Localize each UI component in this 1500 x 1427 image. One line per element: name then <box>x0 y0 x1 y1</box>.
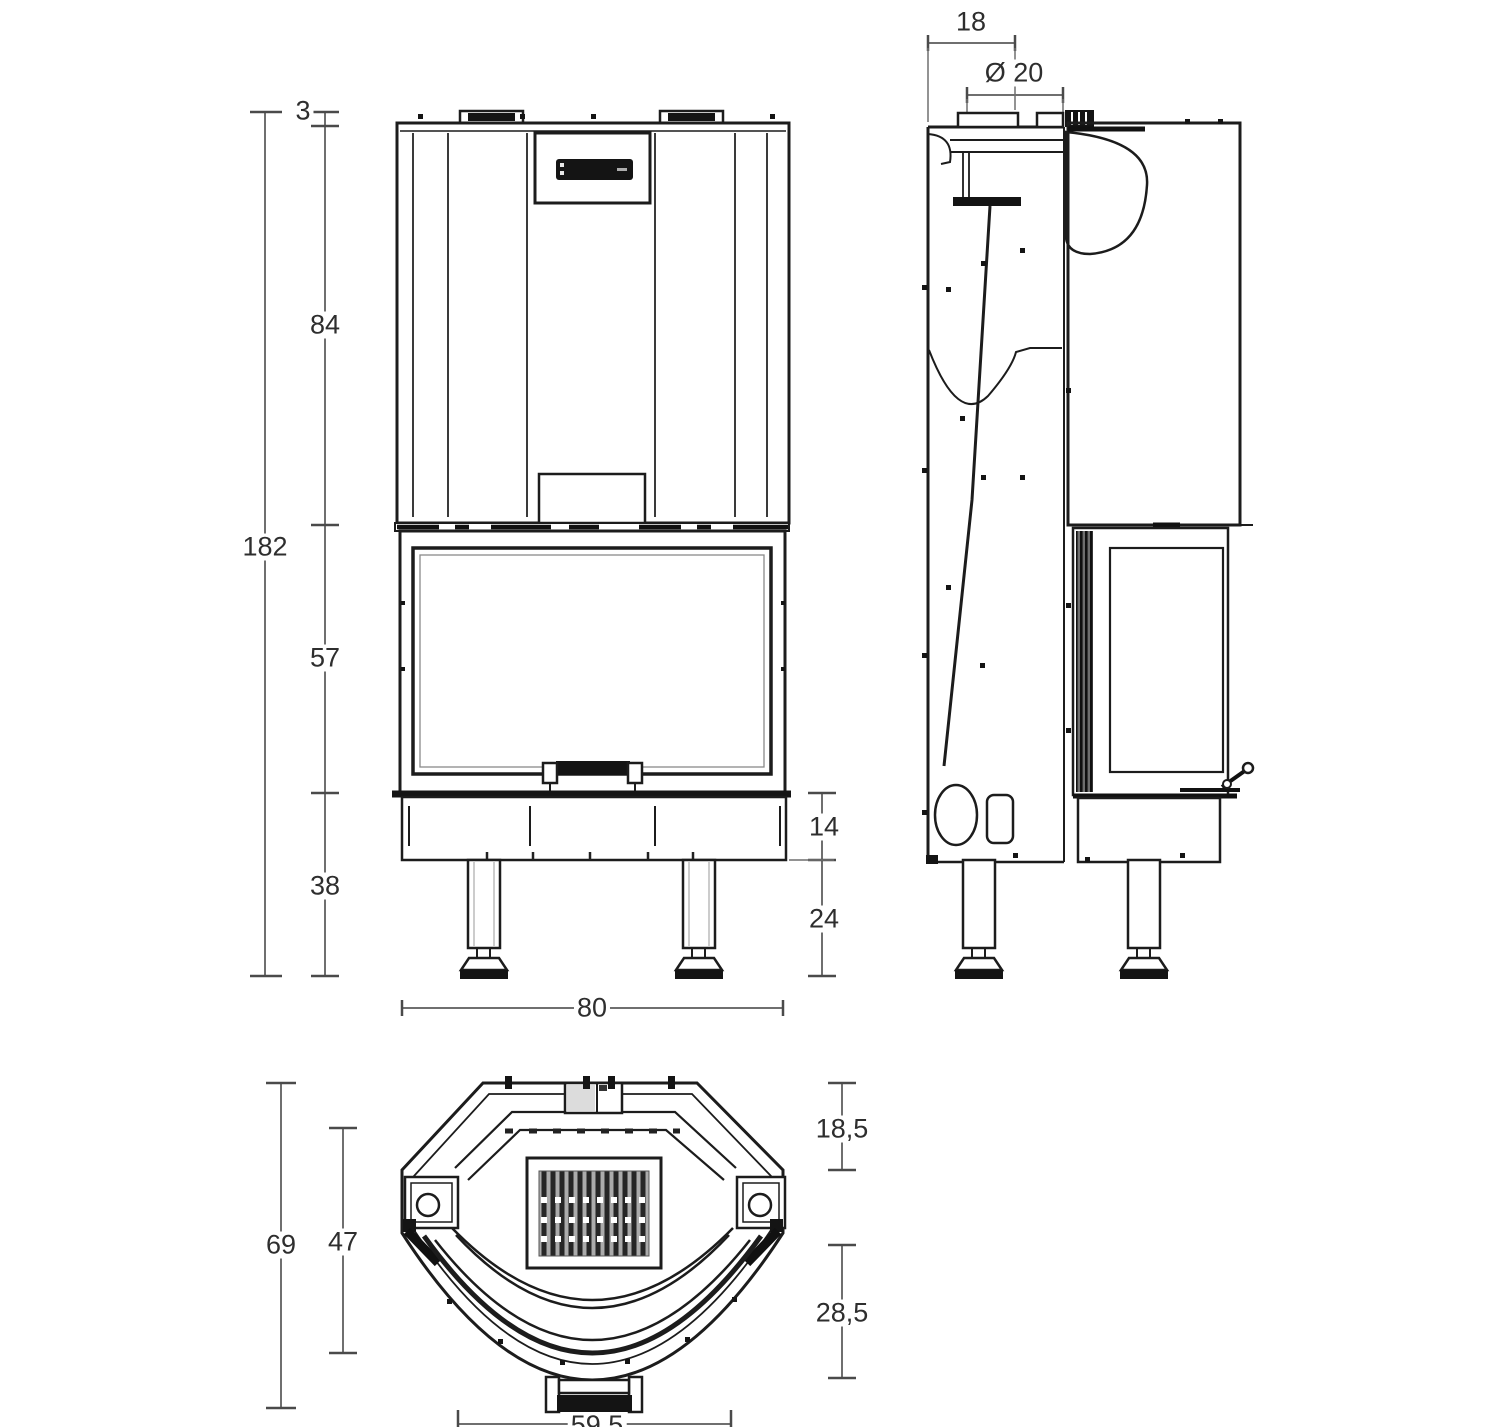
plan-handle <box>546 1377 642 1412</box>
technical-drawing-canvas: 3 84 182 57 38 14 24 80 18 Ø 20 69 47 18… <box>0 0 1500 1427</box>
corner-bracket-left <box>403 1177 458 1232</box>
front-hood <box>395 111 789 531</box>
dim-plan-front-width: 59,5 <box>568 1412 627 1427</box>
damper-access-panel <box>539 474 645 523</box>
fire-grate <box>527 1158 661 1268</box>
dim-side-top-depth: 18 <box>953 9 989 36</box>
dim-front-hood-height: 84 <box>307 312 343 339</box>
front-leg-right <box>675 860 723 979</box>
dim-front-total-height: 182 <box>239 534 290 561</box>
drawing-svg <box>0 0 1500 1427</box>
flue-collar <box>958 113 1018 127</box>
dim-front-top-offset: 3 <box>292 98 313 125</box>
side-view <box>922 35 1253 979</box>
front-firebox <box>392 531 791 794</box>
dim-front-leg-height: 24 <box>806 906 842 933</box>
front-leg-left <box>460 860 508 979</box>
dim-front-plinth-height: 14 <box>806 814 842 841</box>
side-body <box>922 110 1253 979</box>
front-legs <box>460 860 723 979</box>
side-leg-left <box>955 860 1003 979</box>
side-window <box>1073 528 1228 795</box>
dim-plan-rear-offset: 18,5 <box>813 1116 872 1143</box>
dim-front-base-height: 38 <box>307 873 343 900</box>
air-intake-round <box>935 785 977 845</box>
dim-side-flue-diameter: Ø 20 <box>982 60 1047 87</box>
side-leg-right <box>1120 860 1168 979</box>
corner-bracket-right <box>737 1177 785 1232</box>
dim-plan-front-offset: 28,5 <box>813 1300 872 1327</box>
dim-plan-total-depth: 69 <box>263 1232 299 1259</box>
air-intake-slot <box>987 795 1013 843</box>
dim-front-width: 80 <box>574 995 610 1022</box>
front-base <box>402 797 786 860</box>
side-legs <box>955 860 1168 979</box>
dim-plan-inner-depth: 47 <box>325 1229 361 1256</box>
dim-front-door-height: 57 <box>307 645 343 672</box>
